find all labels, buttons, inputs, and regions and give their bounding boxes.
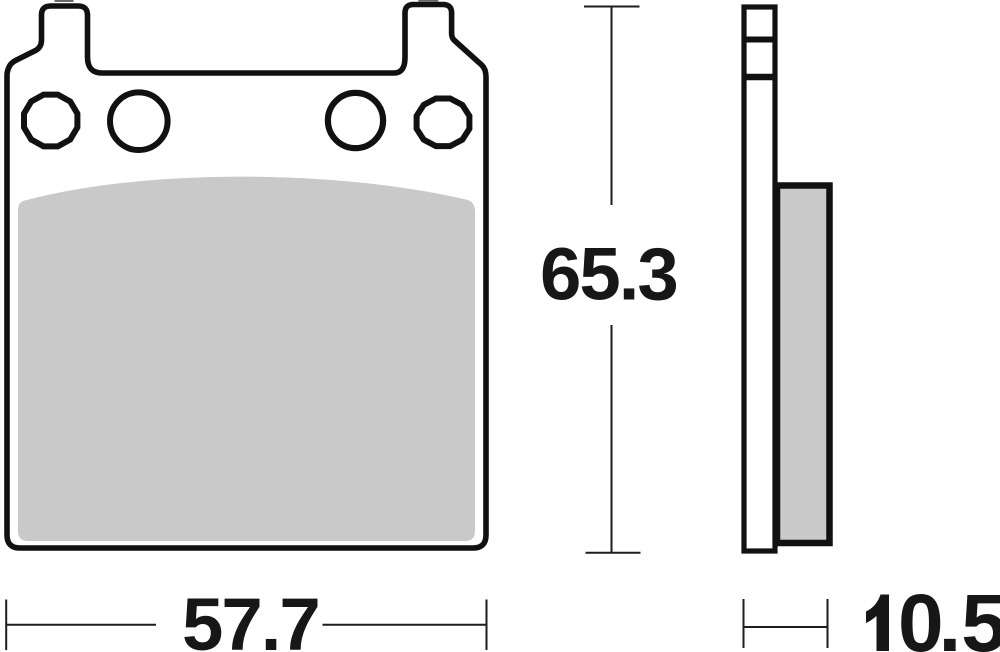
svg-text:0: 0 <box>898 578 944 652</box>
svg-text:.5: .5 <box>939 578 1000 652</box>
svg-text:65.3: 65.3 <box>540 233 677 316</box>
svg-text:57.7: 57.7 <box>182 583 319 652</box>
